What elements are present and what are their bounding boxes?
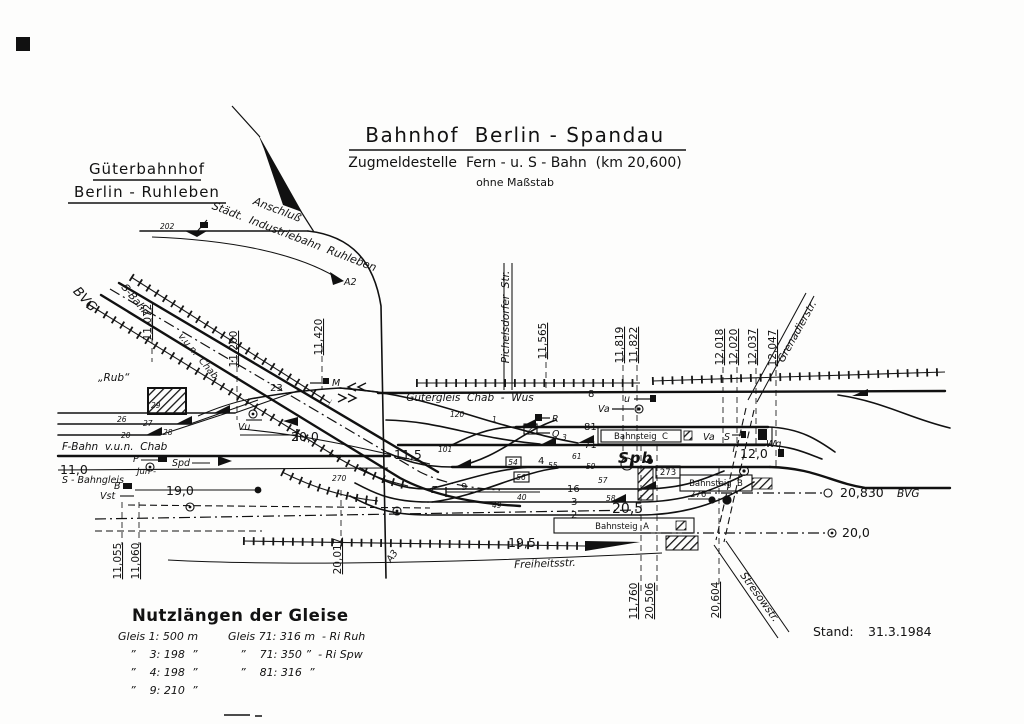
- fbahn-label: F-Bahn v.u.n. Chab: [62, 441, 168, 453]
- signal-e: E: [431, 485, 437, 496]
- switch-3: 3: [562, 433, 567, 442]
- track-3: 3: [571, 497, 577, 508]
- freiheit-label: Freiheitsstr.: [514, 557, 576, 571]
- km-20830: 20,830: [840, 485, 884, 500]
- track-81: 81: [584, 422, 597, 433]
- km-12020: 12,020: [728, 329, 740, 366]
- scale-note: ohne Maßstab: [476, 176, 554, 189]
- track-4: 4: [538, 456, 544, 467]
- signal-vu: Vu: [238, 422, 250, 433]
- km-11760: 11,760: [628, 583, 640, 620]
- gueterbahnhof-title: Güterbahnhof Berlin - Ruhleben: [68, 160, 226, 203]
- switch-270: 270: [332, 474, 347, 483]
- switch-56: 56: [516, 473, 526, 482]
- bvg-right-label: BVG: [897, 488, 920, 500]
- bvg-left-label: BVG: [70, 284, 100, 315]
- platform-a-label: Bahnsteig A: [595, 522, 649, 532]
- switch-27: 27: [143, 419, 153, 428]
- signal-r: R: [552, 414, 559, 425]
- footer: Stand: 31.3.1984: [813, 624, 932, 639]
- km-12018: 12,018: [714, 329, 726, 366]
- km-11060: 11,060: [130, 543, 142, 580]
- length-19-0: 19,0: [166, 483, 194, 498]
- signal-m: M: [332, 378, 340, 389]
- km-11822: 11,822: [628, 327, 640, 364]
- signal-a2: A2: [343, 277, 357, 288]
- track-16: 16: [567, 484, 580, 495]
- platform-b-label: Bahnsteig B: [689, 479, 743, 489]
- length-11-5: 11,5: [394, 447, 422, 462]
- page-subtitle: Zugmeldestelle Fern - u. S - Bahn (km 20…: [348, 155, 681, 171]
- switch-49: 49: [492, 501, 502, 510]
- rub-label: „Rub“: [98, 372, 130, 384]
- switch-57: 57: [598, 476, 608, 485]
- signal-s: S: [724, 432, 730, 443]
- km-11819: 11,819: [614, 327, 626, 364]
- length-20-0-left: 20,0: [291, 429, 319, 444]
- legend-row: Gleis 1: 500 m: [118, 630, 198, 643]
- length-20-5: 20,5: [612, 501, 643, 517]
- switch-120: 120: [450, 410, 465, 419]
- length-19-5: 19,5: [508, 535, 536, 550]
- length-11-0: 11,0: [60, 462, 88, 477]
- jun-label: Jun -: [135, 467, 156, 477]
- legend-row: ” 81: 316 ”: [240, 666, 315, 679]
- track-diagram-page: Bahnhof Berlin - Spandau Zugmeldestelle …: [0, 0, 1024, 724]
- length-20-0-right: 20,0: [842, 525, 870, 540]
- switch-59: 59: [586, 462, 596, 471]
- signal-vst: Vst: [100, 491, 116, 502]
- km-11420: 11,420: [313, 319, 325, 356]
- track-8: 8: [588, 389, 594, 400]
- switch-40: 40: [517, 493, 527, 502]
- switch-101: 101: [438, 445, 452, 454]
- switch-54: 54: [508, 458, 518, 467]
- stand-label: Stand:: [813, 624, 854, 639]
- switch-55: 55: [548, 461, 558, 470]
- pichelsdorfer-strasse: Pichelsdorfer Str.: [500, 263, 512, 390]
- signal-u: u: [624, 394, 630, 405]
- switch-58: 58: [606, 494, 616, 503]
- switch-202: 202: [160, 222, 175, 231]
- km-11200: 11,200: [228, 331, 240, 368]
- track-71: 71: [584, 440, 597, 451]
- km-20017: 20,017: [332, 538, 344, 575]
- header: Bahnhof Berlin - Spandau Zugmeldestelle …: [348, 123, 686, 189]
- legend-row: Gleis 71: 316 m - Ri Ruh: [228, 630, 365, 643]
- km-11055: 11,055: [112, 543, 124, 580]
- legend-row: ” 71: 350 ” - Ri Spw: [240, 648, 363, 661]
- legend-row: ” 4: 198 ”: [130, 666, 198, 679]
- freiheit-strasse: Freiheitsstr.: [168, 541, 662, 571]
- gueterbahnhof-line2: Berlin - Ruhleben: [74, 183, 220, 201]
- signal-va-2: Va: [703, 432, 715, 443]
- switch-2: 2: [528, 425, 533, 434]
- switch-28: 28: [163, 428, 173, 437]
- left-tracks: [58, 383, 638, 531]
- switch-273: 273: [660, 468, 676, 478]
- gueterbahnhof-line1: Güterbahnhof: [89, 160, 205, 178]
- pichelsdorfer-label: Pichelsdorfer Str.: [500, 271, 512, 364]
- switch-276: 276: [690, 490, 706, 500]
- length-12-0: 12,0: [740, 446, 768, 461]
- legend-heading: Nutzlängen der Gleise: [132, 606, 349, 625]
- track-2: 2: [571, 510, 577, 521]
- switch-20: 20: [121, 431, 131, 440]
- legend-row: ” 9: 210 ”: [130, 684, 198, 697]
- switch-1: 1: [492, 415, 497, 424]
- signal-spd: Spd: [172, 458, 191, 469]
- switch-61: 61: [572, 452, 582, 461]
- km-12037: 12,037: [747, 329, 759, 366]
- legend-row: ” 3: 198 ”: [130, 648, 198, 661]
- switch-26: 26: [117, 415, 127, 424]
- track-23: 23: [270, 383, 283, 394]
- page-title: Bahnhof Berlin - Spandau: [365, 123, 664, 147]
- signal-wq: Wq: [766, 439, 781, 450]
- signal-p: P: [133, 454, 139, 465]
- gueterglein-label: Gütergleis Chab - Wus: [406, 392, 534, 404]
- km-20604: 20,604: [710, 581, 722, 618]
- platform-c-label: Bahnsteig C: [614, 432, 668, 442]
- track-9: 9: [461, 482, 467, 493]
- km-20506: 20,506: [644, 582, 656, 619]
- stresow-strasse: Stresowstr.: [714, 541, 789, 638]
- km-12047: 12,047: [767, 330, 779, 367]
- signal-va-1: Va: [598, 404, 610, 415]
- stresow-label: Stresowstr.: [737, 570, 781, 624]
- km-11565: 11,565: [537, 323, 549, 360]
- nutzlaengen-legend: Nutzlängen der Gleise Gleis 1: 500 m ” 3…: [118, 606, 365, 697]
- stand-date: 31.3.1984: [868, 624, 932, 639]
- spb-label: Spb: [618, 449, 653, 467]
- track-diagram-canvas: Bahnhof Berlin - Spandau Zugmeldestelle …: [0, 0, 1024, 724]
- switch-29: 29: [151, 401, 161, 410]
- signal-q: Q: [552, 429, 560, 440]
